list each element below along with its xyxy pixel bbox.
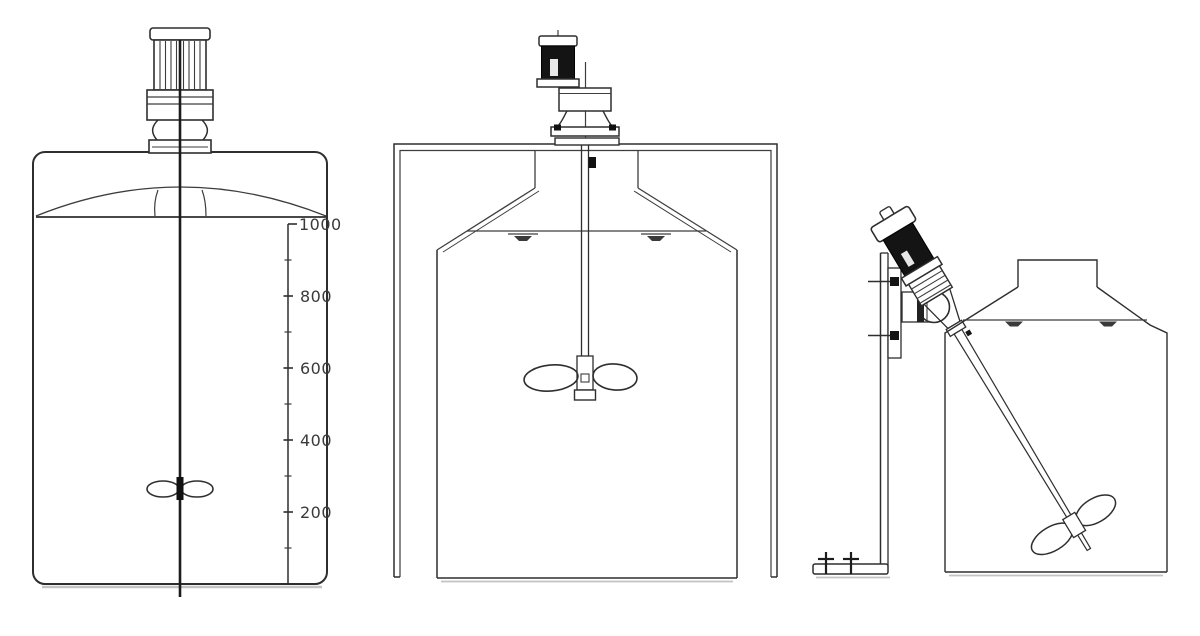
entry-collar: [946, 320, 966, 336]
level-symbol-right: [1099, 322, 1117, 327]
motor-fan-cover: [539, 36, 577, 46]
scale-label-800: 800: [300, 287, 332, 306]
technical-diagram-page: 1000 800 600 400 200: [0, 0, 1200, 636]
mounting-plate: [555, 138, 619, 145]
level-symbol-left: [1005, 322, 1023, 327]
motor-base: [537, 79, 579, 87]
bolted-flange: [551, 127, 619, 136]
impeller-hub: [575, 390, 596, 400]
collar-bolt: [965, 329, 972, 336]
motor-fan-cover: [150, 28, 210, 40]
mixer-diagrams-svg: 1000 800 600 400 200: [0, 0, 1200, 636]
impeller-hub: [177, 477, 184, 500]
panel-frame-mounted-mixer: [394, 30, 777, 582]
shaft-tube: [577, 356, 593, 390]
scale-label-200: 200: [300, 503, 332, 522]
shaft-clamp: [589, 157, 597, 168]
scale-label-400: 400: [300, 431, 332, 450]
gearbox: [559, 88, 611, 111]
height-scale: 1000 800 600 400 200: [284, 215, 342, 584]
agitator-shaft: [575, 145, 597, 400]
level-symbol-right: [641, 234, 671, 241]
scale-label-1000: 1000: [299, 215, 342, 234]
panel-angled-side-mixer: [813, 184, 1167, 577]
plate-bolt-upper: [890, 277, 899, 286]
plate-bolt-lower: [890, 331, 899, 340]
flange-bolt-right: [609, 125, 616, 131]
propeller-impeller: [147, 477, 213, 500]
drive-motor: [537, 30, 619, 138]
tilted-mixer-unit: [842, 184, 1130, 574]
panel-top-entry-mixer: 1000 800 600 400 200: [33, 28, 342, 597]
flange-bolt-left: [554, 125, 561, 131]
scale-label-600: 600: [300, 359, 332, 378]
level-symbol-left: [508, 234, 538, 241]
